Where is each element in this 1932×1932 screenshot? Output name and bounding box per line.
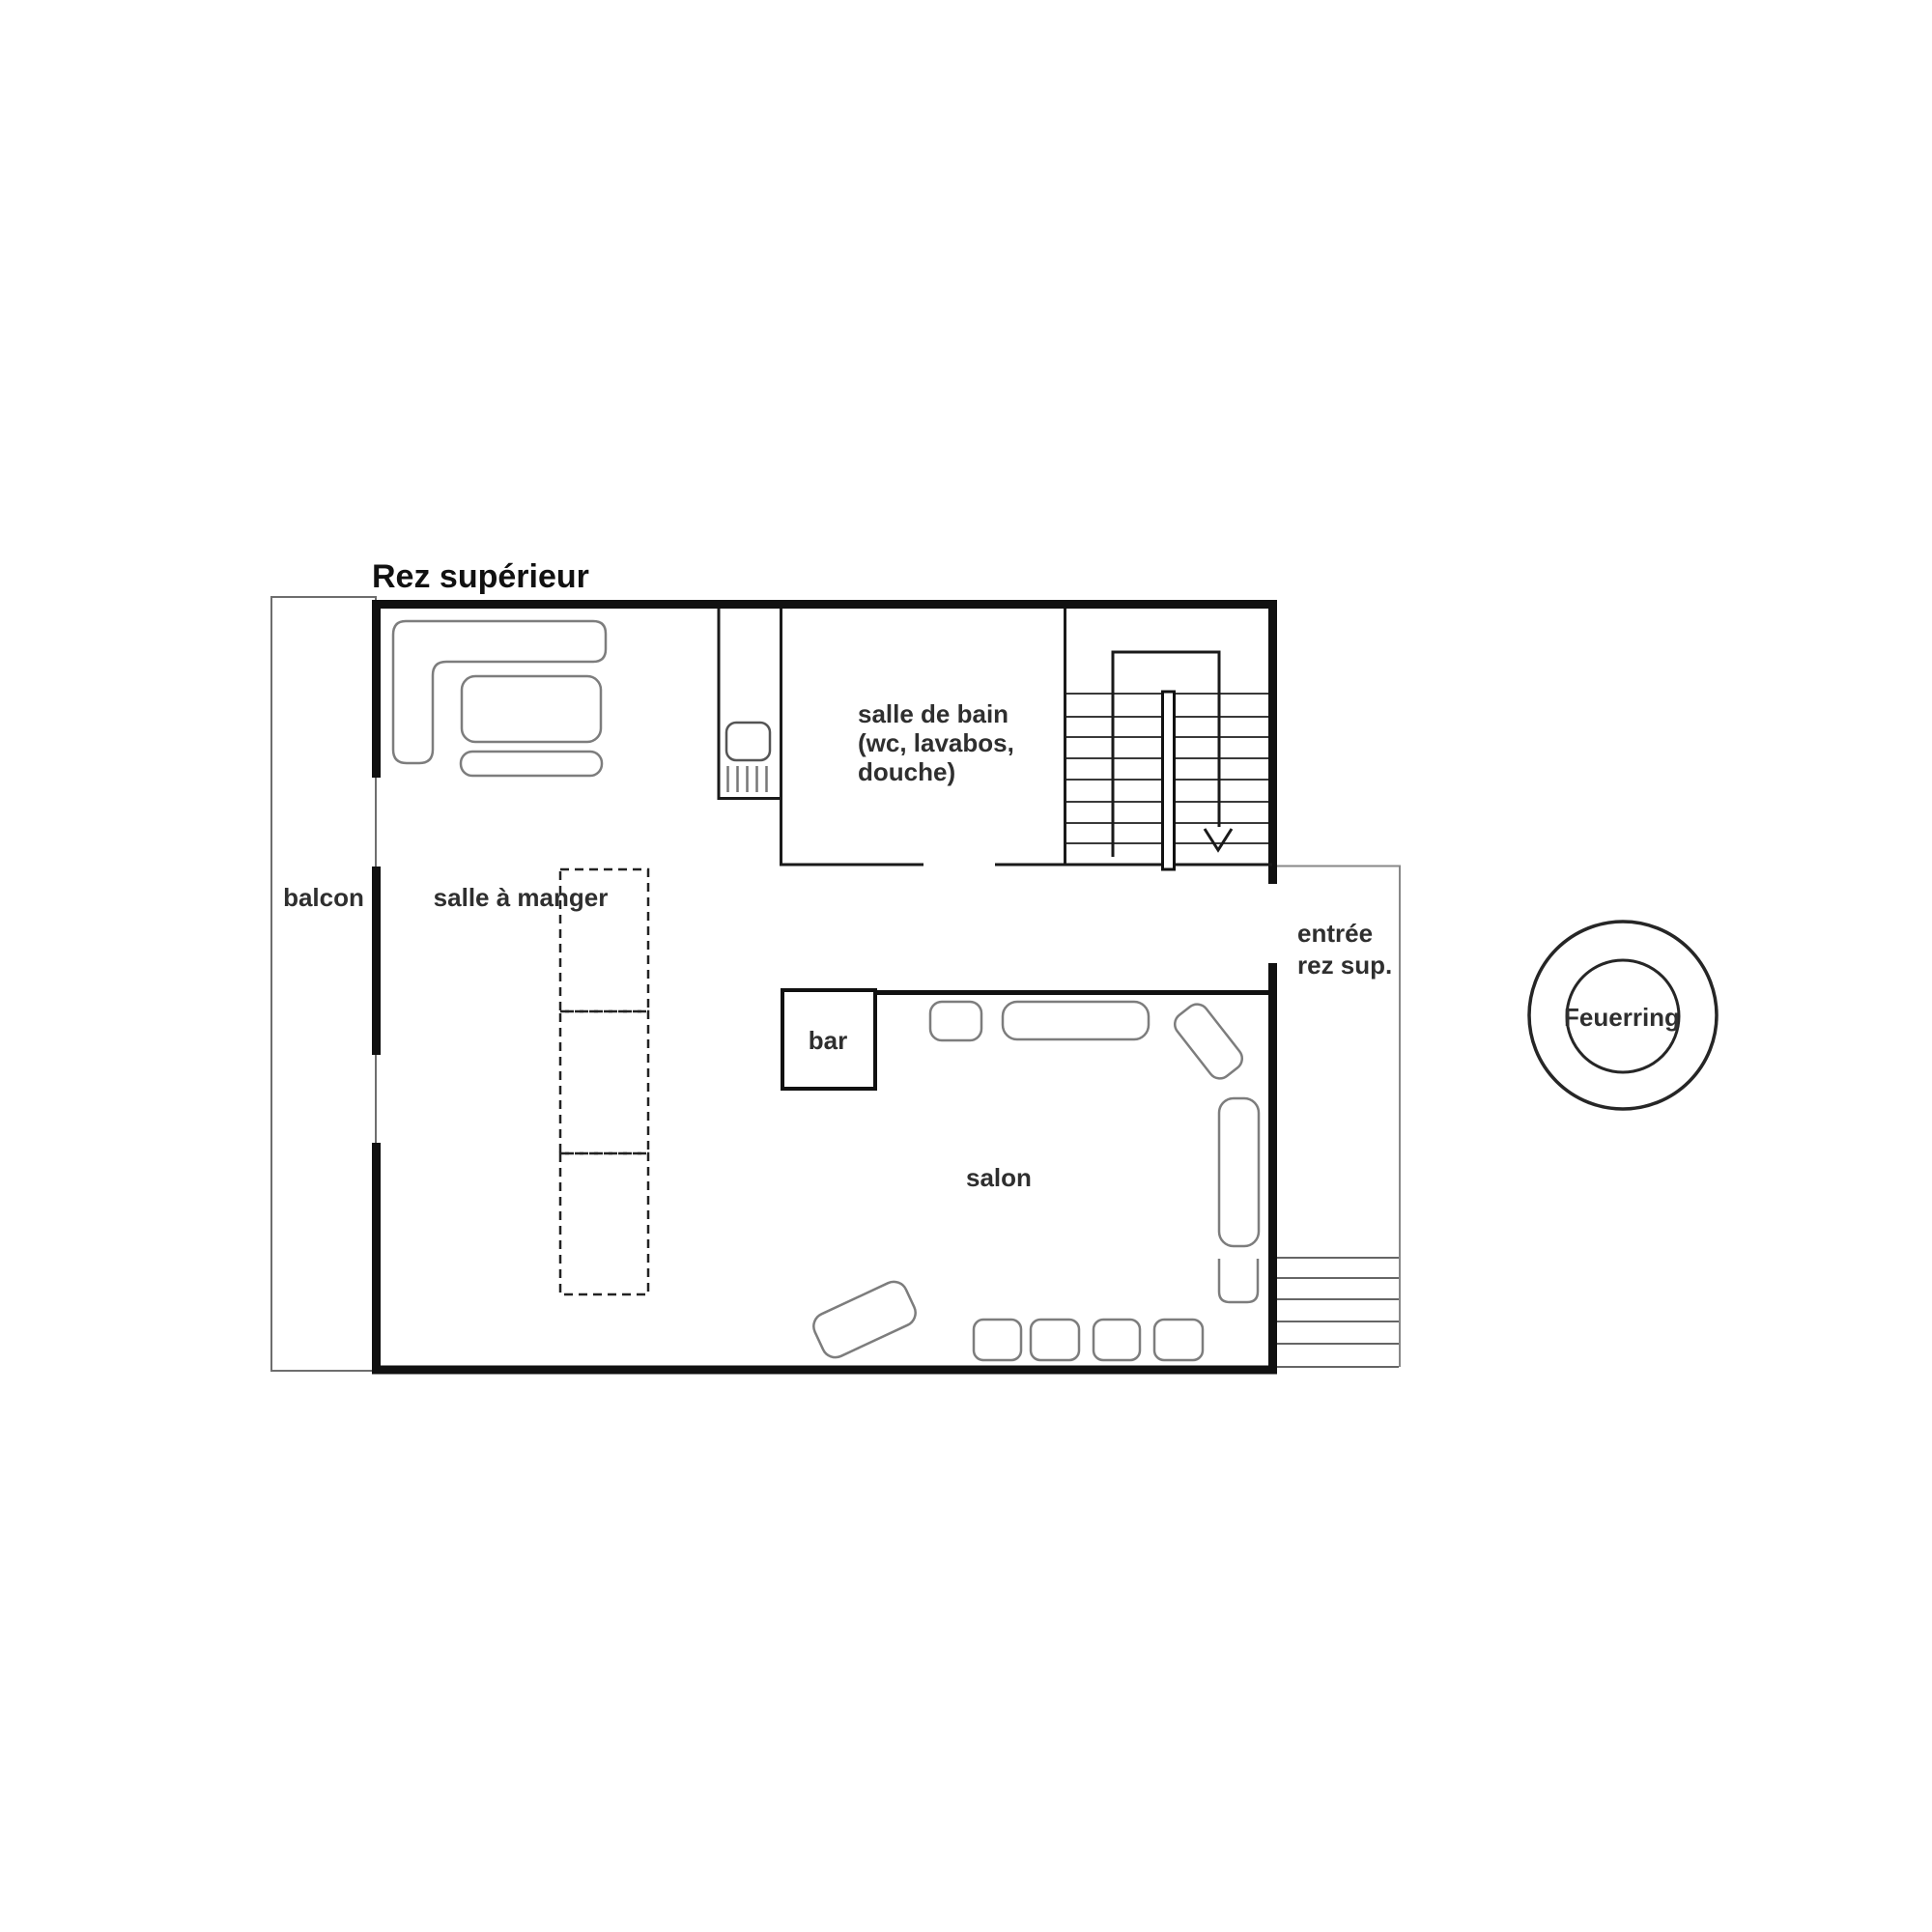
feuerring-label: Feuerring (1564, 1003, 1680, 1032)
feuerring-symbol: Feuerring (1529, 922, 1717, 1109)
bathroom-label-line2: (wc, lavabos, (858, 728, 1014, 757)
drainer-grill-icon (728, 766, 767, 792)
bathroom-label: salle de bain (wc, lavabos, douche) (858, 699, 1014, 786)
armchair-1 (930, 1002, 981, 1040)
entrance-label: entrée rez sup. (1297, 919, 1392, 980)
balcony-outline (271, 597, 376, 1371)
balcony-label: balcon (283, 883, 364, 912)
bathroom-label-line3: douche) (858, 757, 955, 786)
stool-2 (1031, 1320, 1079, 1360)
stair-center-railing (1163, 692, 1175, 869)
plan-title: Rez supérieur (372, 558, 589, 595)
dining-furniture (393, 621, 648, 1294)
sink-basin (726, 723, 770, 760)
staircase (1066, 652, 1268, 869)
entrance-label-line1: entrée (1297, 919, 1373, 948)
stool-3 (1094, 1320, 1140, 1360)
bathroom-label-line1: salle de bain (858, 699, 1009, 728)
dining-room-label: salle à manger (434, 883, 609, 912)
dining-table-dashed (560, 869, 648, 1294)
exterior-stairs (1277, 1258, 1399, 1367)
floor-plan-page: Feuerring Rez supérieur balcon salle à m… (0, 0, 1932, 1932)
stool-1 (974, 1320, 1021, 1360)
floor-plan-drawing: Feuerring Rez supérieur balcon salle à m… (0, 0, 1932, 1932)
seat-open-top (1219, 1259, 1258, 1302)
sofa-top (1003, 1002, 1149, 1039)
kitchen-fixtures (726, 723, 770, 792)
bench (461, 752, 602, 776)
stool-4 (1154, 1320, 1203, 1360)
lounger-diagonal (810, 1277, 921, 1361)
coffee-table (462, 676, 601, 742)
stair-down-arrow-icon (1205, 829, 1232, 850)
bar-label: bar (809, 1026, 847, 1055)
salon-label: salon (966, 1163, 1032, 1192)
sofa-corner-diagonal (1170, 1000, 1246, 1083)
sofa-right (1219, 1098, 1259, 1246)
entrance-label-line2: rez sup. (1297, 951, 1392, 980)
